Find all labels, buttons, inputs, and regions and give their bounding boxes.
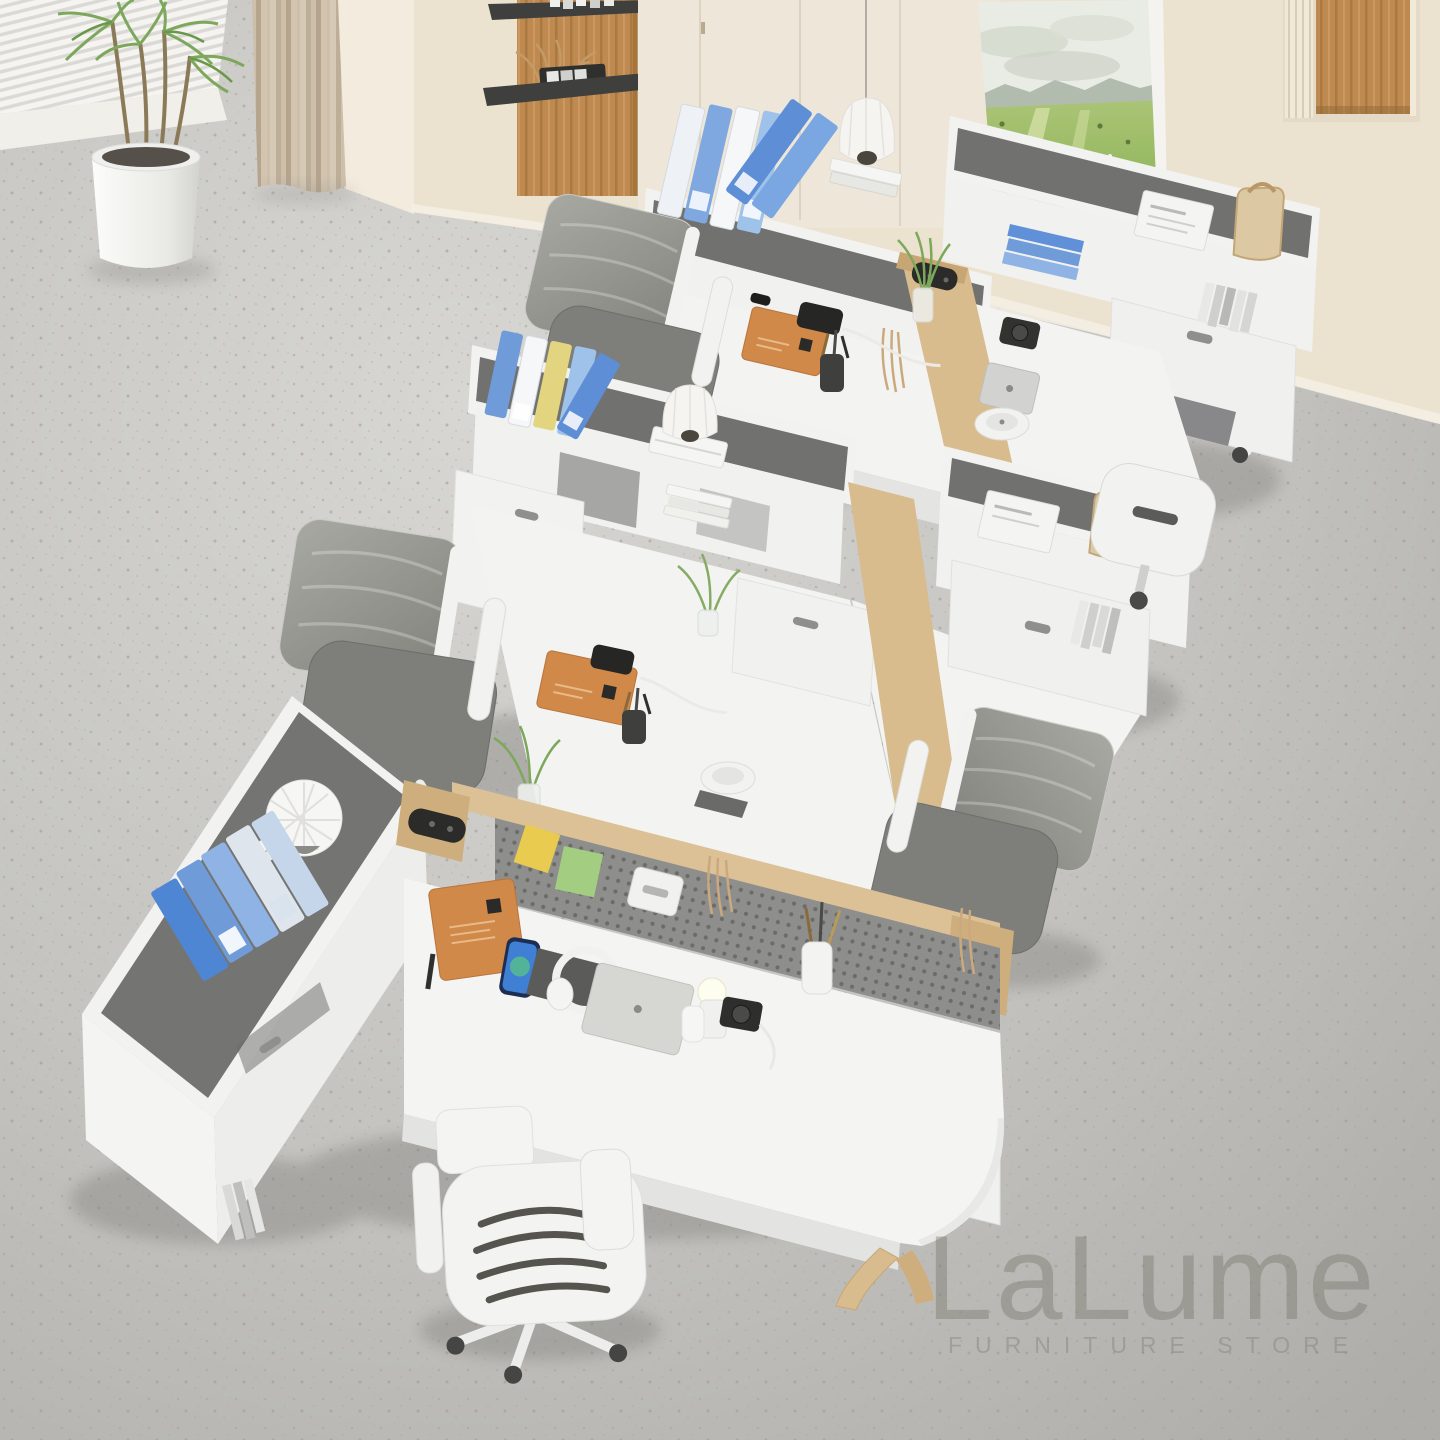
tote-bag (1229, 181, 1289, 263)
product-photo: LaLume FURNITURE STORE (0, 0, 1440, 1440)
watermark-tagline: FURNITURE STORE (948, 1334, 1368, 1357)
smart-speaker (975, 408, 1029, 440)
watermark-brand: LaLume (926, 1218, 1386, 1338)
wall-niche (1283, 0, 1420, 122)
cabinet-handle (701, 22, 705, 34)
bottle (682, 1006, 704, 1042)
